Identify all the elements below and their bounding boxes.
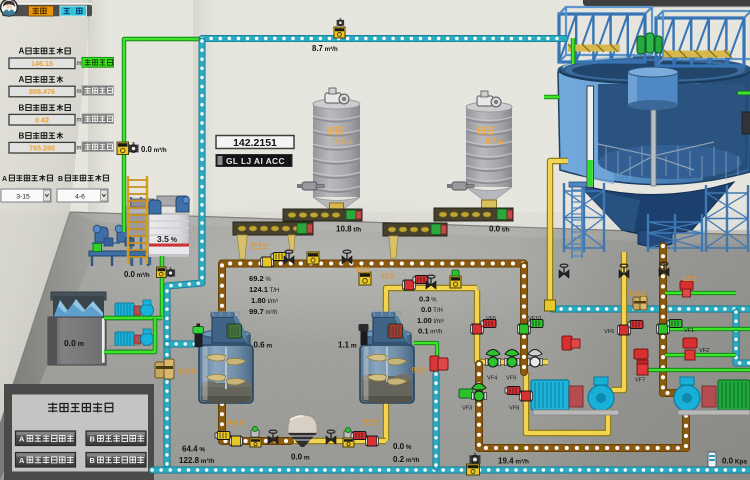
svg-text:VF9: VF9	[506, 376, 516, 382]
svg-text:0.0 Kpa: 0.0 Kpa	[722, 457, 747, 466]
svg-text:A: A	[19, 456, 25, 465]
svg-text:B: B	[19, 103, 25, 112]
svg-text:B: B	[90, 456, 96, 465]
svg-text:0.0 m: 0.0 m	[291, 453, 310, 462]
svg-text:0.0 m³/h: 0.0 m³/h	[141, 145, 167, 154]
svg-text:0.0 t/h: 0.0 t/h	[489, 225, 510, 234]
svg-text:0.0 %: 0.0 %	[393, 442, 412, 451]
svg-text:0.42: 0.42	[35, 115, 49, 124]
svg-text:3-15: 3-15	[16, 193, 30, 200]
svg-text:0.0 %: 0.0 %	[683, 276, 697, 282]
svg-text:VF5: VF5	[486, 316, 496, 322]
svg-text:11.0 %: 11.0 %	[179, 369, 196, 375]
svg-text:A: A	[19, 435, 25, 444]
svg-text:122.8 m³/h: 122.8 m³/h	[179, 456, 214, 465]
svg-text:17.9 %: 17.9 %	[251, 243, 268, 249]
svg-text:GL LJ AI ACC: GL LJ AI ACC	[226, 156, 285, 166]
svg-text:VF6: VF6	[604, 329, 614, 335]
svg-text:11.5 %: 11.5 %	[629, 291, 646, 297]
svg-text:VF10: VF10	[528, 316, 541, 322]
svg-text:4-6: 4-6	[75, 193, 85, 200]
svg-text:0.0 %: 0.0 %	[364, 419, 378, 425]
svg-text:0.2 m³/h: 0.2 m³/h	[393, 455, 419, 464]
svg-text:B: B	[90, 435, 96, 444]
svg-text:A: A	[2, 176, 7, 183]
svg-text:VF4: VF4	[487, 376, 497, 382]
svg-text:VF3: VF3	[462, 406, 472, 412]
svg-text:VF8: VF8	[509, 406, 519, 412]
svg-text:0.0 %: 0.0 %	[381, 273, 395, 279]
svg-text:VF7: VF7	[635, 378, 645, 384]
svg-text:765.280: 765.280	[29, 143, 55, 152]
svg-text:VF1: VF1	[684, 328, 694, 334]
svg-text:0.6 m: 0.6 m	[254, 341, 273, 350]
svg-text:9.7 m: 9.7 m	[485, 137, 504, 146]
svg-text:7.2 m: 7.2 m	[334, 137, 353, 146]
svg-text:B: B	[58, 176, 63, 183]
svg-text:A: A	[19, 75, 25, 84]
svg-text:B: B	[19, 131, 25, 140]
svg-text:0.0 m³/h: 0.0 m³/h	[124, 270, 150, 279]
svg-text:19.4 m³/h: 19.4 m³/h	[498, 457, 529, 466]
svg-text:10.8 t/h: 10.8 t/h	[336, 225, 361, 234]
svg-text:8.8 %: 8.8 %	[356, 267, 370, 273]
svg-text:1.1 m: 1.1 m	[338, 341, 357, 350]
svg-text:0.0 %: 0.0 %	[412, 367, 426, 373]
svg-text:VF2: VF2	[699, 348, 709, 354]
svg-text:A: A	[19, 47, 25, 56]
svg-text:808.476: 808.476	[29, 87, 55, 96]
svg-text:26.6 %: 26.6 %	[227, 420, 244, 426]
svg-text:142.2151: 142.2151	[233, 137, 277, 149]
svg-text:146.15: 146.15	[31, 59, 53, 68]
svg-text:8.7 m³/h: 8.7 m³/h	[312, 44, 338, 53]
svg-text:64.4 %: 64.4 %	[182, 445, 205, 454]
